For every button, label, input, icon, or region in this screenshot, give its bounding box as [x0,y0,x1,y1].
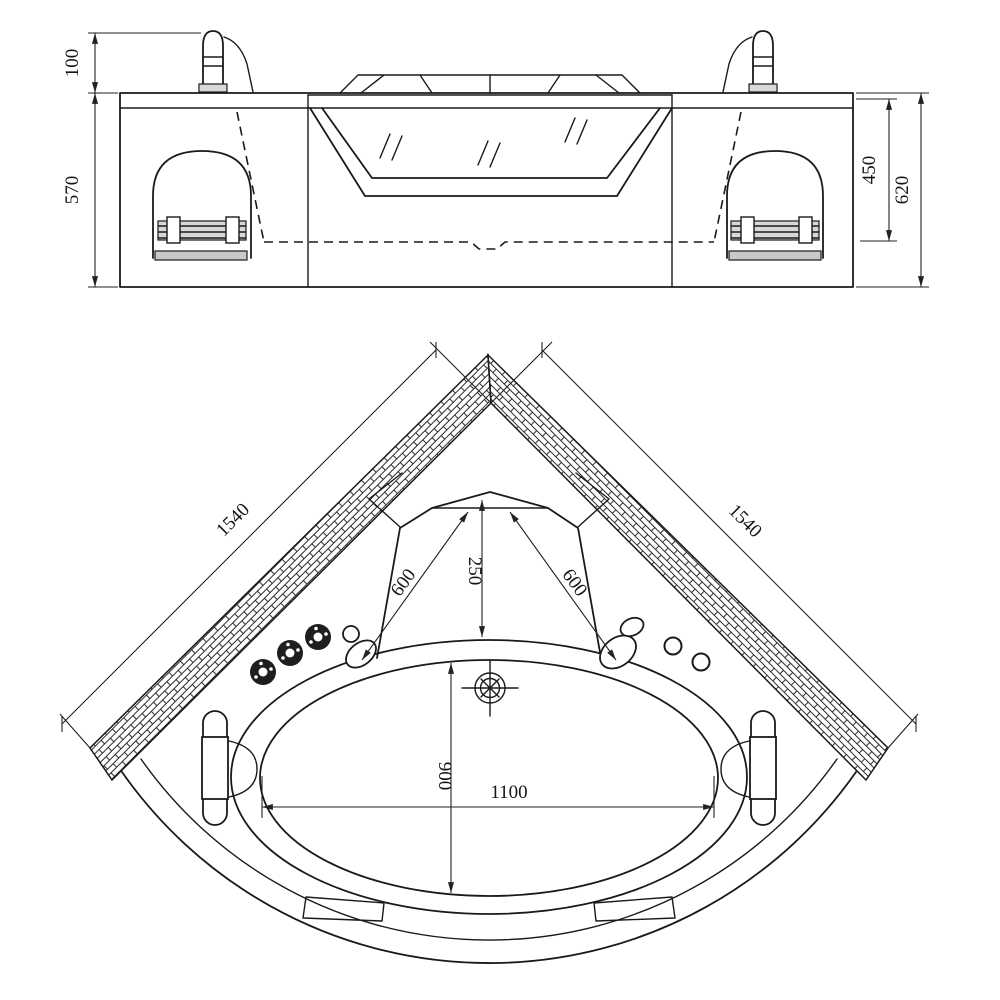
wall-left [90,355,491,780]
faucet-left-elevation [199,31,253,92]
elevation-dimensions: 100 570 450 620 [62,33,929,287]
wall-right [488,355,888,780]
plan-dimensions: 1540 1540 250 600 600 900 1100 [60,342,918,893]
drawing-canvas: 100 570 450 620 [0,0,1000,1000]
step-panel-right [594,897,675,921]
jet-knob-3 [305,624,331,650]
faucet-right-elevation [723,31,777,92]
back-rim-edge [340,75,640,93]
dim-label-1540-right: 1540 [724,500,766,542]
waterline-dashed [237,112,741,249]
well-ellipse [260,660,718,896]
plan-view: 1540 1540 250 600 600 900 1100 [60,342,918,963]
jet-knobs [250,624,331,685]
jet-knob-2 [277,640,303,666]
water-reflection-marks [380,118,587,167]
drain [462,660,518,716]
seat-rim-ellipse [231,640,747,914]
bathtub-technical-drawing: 100 570 450 620 [0,0,1000,1000]
jet-knob-1 [250,659,276,685]
dim-label-620: 620 [892,176,913,205]
apron-outer-arc [122,772,856,963]
dim-label-100: 100 [62,49,83,78]
right-arch-panel [727,151,823,260]
faucet-handle-left [341,626,381,673]
dim-label-570: 570 [62,176,83,205]
dim-label-1540-left: 1540 [212,499,254,541]
pillow-base-left [155,251,247,260]
dim-label-250: 250 [464,557,485,586]
air-controls [665,638,710,671]
dim-label-1100: 1100 [490,782,527,803]
dim-label-450: 450 [859,156,880,185]
dim-label-900: 900 [434,762,455,791]
step-panel-left [303,897,384,921]
left-arch-panel [153,151,251,260]
basin-section [310,108,672,196]
front-elevation-view: 100 570 450 620 [62,31,929,287]
apron-inner-arc [141,759,837,940]
pillow-base-right [729,251,821,260]
